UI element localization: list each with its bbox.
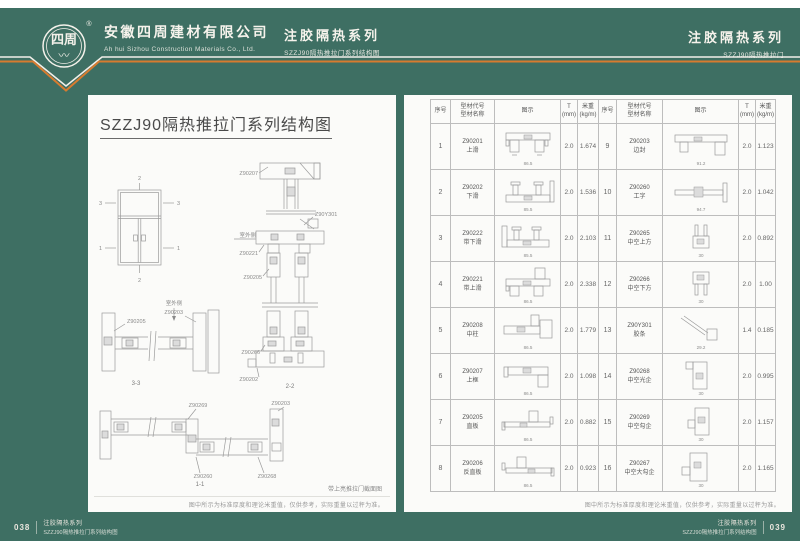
meter-weight-value: 1.042 xyxy=(756,170,776,216)
page-number-right: 039 xyxy=(770,523,786,532)
row-number: 1 xyxy=(431,124,451,170)
profile-dimension: 86.5 xyxy=(523,391,532,396)
row-number: 2 xyxy=(431,170,451,216)
elevation-marker: 2 xyxy=(138,176,141,182)
thickness-value: 2.0 xyxy=(739,400,756,446)
profile-code-name: Z90206反直板 xyxy=(451,446,495,492)
thickness-value: 2.0 xyxy=(561,308,578,354)
row-number: 6 xyxy=(431,354,451,400)
row-number: 4 xyxy=(431,262,451,308)
profile-name: 中空勾企 xyxy=(617,423,662,432)
profile-diagram-cell: 30 xyxy=(663,216,739,262)
row-number: 7 xyxy=(431,400,451,446)
profile-code: Z90260 xyxy=(617,184,662,193)
profile-dimension: 30 xyxy=(698,253,704,258)
profile-name: 中空上方 xyxy=(617,239,662,248)
profile-code-name: Z90205直板 xyxy=(451,400,495,446)
meter-weight-value: 0.923 xyxy=(578,446,599,492)
profile-diagram-cell: 85.5 xyxy=(495,216,561,262)
profile-dimension: 91.2 xyxy=(696,161,705,166)
profile-label: Z90269 xyxy=(189,403,208,409)
profile-diagram-cell: 85.5 xyxy=(495,170,561,216)
profile-label: Z90203 xyxy=(164,310,183,316)
profile-diagram-cell: 91.2 xyxy=(663,124,739,170)
profile-diagram: 85.5 xyxy=(498,220,558,258)
meter-weight-value: 0.892 xyxy=(756,216,776,262)
profile-label: Z90205 xyxy=(127,319,146,325)
profile-code: Z90221 xyxy=(451,276,494,285)
profile-code: Z90203 xyxy=(617,138,662,147)
meter-weight-value: 1.00 xyxy=(756,262,776,308)
profile-name: 上滑 xyxy=(451,147,494,156)
footer-left: 038 注胶隔热系列 SZZJ90隔热推拉门系列结构图 xyxy=(14,518,118,536)
section-caption: 2-2 xyxy=(286,384,295,390)
profile-spec-table: 序号 型材代号型材名称 图示 T(mm) 米重(kg/m) 序号 型材代号型材名… xyxy=(430,99,776,492)
spec-row: 6Z90207上框86.52.01.09814Z90268中空光企302.00.… xyxy=(431,354,776,400)
thickness-value: 2.0 xyxy=(561,354,578,400)
profile-dimension: 94.7 xyxy=(696,207,705,212)
row-number: 8 xyxy=(431,446,451,492)
meter-weight-value: 1.165 xyxy=(756,446,776,492)
registered-mark: ® xyxy=(86,20,92,28)
profile-code: Z90207 xyxy=(451,368,494,377)
col-header-weight: 米重(kg/m) xyxy=(756,100,776,124)
profile-label: Z90268 xyxy=(258,474,277,480)
profile-diagram: 30 xyxy=(671,358,731,396)
thickness-value: 2.0 xyxy=(561,262,578,308)
profile-diagram: 86.5 xyxy=(498,404,558,442)
profile-code: Z90202 xyxy=(451,184,494,193)
col-header-diagram: 图示 xyxy=(495,100,561,124)
profile-diagram-cell: 86.5 xyxy=(495,262,561,308)
spec-row: 4Z90221带上滑86.52.02.33812Z90266中空下方302.01… xyxy=(431,262,776,308)
right-page-note: 图中所示为标准厚度和理论米重值，仅供参考，实际重量以过秤为准。 xyxy=(585,500,780,509)
profile-name: 中空大勾企 xyxy=(617,469,662,478)
thickness-value: 2.0 xyxy=(561,170,578,216)
profile-code-name: Z90260工字 xyxy=(617,170,663,216)
series-subtitle-center: SZZJ90隔热推拉门系列结构图 xyxy=(240,47,424,57)
profile-name: 边封 xyxy=(617,147,662,156)
profile-dimension: 30 xyxy=(698,437,704,442)
left-page-note: 图中所示为标准厚度和理论米重值，仅供参考，实际重量以过秤为准。 xyxy=(189,500,384,509)
profile-dimension: 85.5 xyxy=(523,253,532,258)
profile-code: Z90266 xyxy=(617,276,662,285)
profile-code-name: Z90Y301胶条 xyxy=(617,308,663,354)
profile-code-name: Z90201上滑 xyxy=(451,124,495,170)
profile-dimension: 86.5 xyxy=(523,483,532,488)
profile-dimension: 30 xyxy=(698,299,704,304)
profile-diagram: 94.7 xyxy=(671,174,731,212)
right-page: 序号 型材代号型材名称 图示 T(mm) 米重(kg/m) 序号 型材代号型材名… xyxy=(404,95,792,512)
profile-name: 直板 xyxy=(451,423,494,432)
table-header: 序号 型材代号型材名称 图示 T(mm) 米重(kg/m) 序号 型材代号型材名… xyxy=(431,100,776,124)
series-title-center-block: 注胶隔热系列 SZZJ90隔热推拉门系列结构图 xyxy=(240,25,424,57)
profile-diagram: 86.5 xyxy=(498,312,558,350)
thickness-value: 2.0 xyxy=(739,216,756,262)
profile-label: Z90205 xyxy=(243,275,262,281)
meter-weight-value: 2.103 xyxy=(578,216,599,262)
series-title-right-block: 注胶隔热系列 SZZJ90隔热推拉门 xyxy=(688,27,784,59)
profile-name: 下滑 xyxy=(451,193,494,202)
profile-name: 中柱 xyxy=(451,331,494,340)
col-header-no: 序号 xyxy=(431,100,451,124)
meter-weight-value: 1.674 xyxy=(578,124,599,170)
profile-code-name: Z90207上框 xyxy=(451,354,495,400)
sizhou-logo-icon: 四周 〰 ® xyxy=(43,20,92,67)
profile-code: Z90Y301 xyxy=(617,322,662,331)
catalog-spread: 四周 〰 ® 安徽四周建材有限公司 Ah hui Sizhou Construc… xyxy=(0,0,800,546)
profile-label: Z90266 xyxy=(241,350,260,356)
series-subtitle-right: SZZJ90隔热推拉门 xyxy=(688,49,784,59)
profile-label: Z90203 xyxy=(271,401,290,407)
profile-code-name: Z90203边封 xyxy=(617,124,663,170)
profile-diagram-cell: 29.2 xyxy=(663,308,739,354)
thickness-value: 2.0 xyxy=(561,216,578,262)
outdoor-side-label: 室外侧 xyxy=(166,299,183,307)
meter-weight-value: 1.157 xyxy=(756,400,776,446)
col-header-no: 序号 xyxy=(599,100,617,124)
row-number: 13 xyxy=(599,308,617,354)
col-header-t: T(mm) xyxy=(739,100,756,124)
row-number: 12 xyxy=(599,262,617,308)
meter-weight-value: 1.779 xyxy=(578,308,599,354)
profile-diagram: 86.5 xyxy=(498,128,558,166)
divider xyxy=(94,496,390,497)
profile-name: 上框 xyxy=(451,377,494,386)
series-title-right: 注胶隔热系列 xyxy=(688,27,784,46)
page-number-left: 038 xyxy=(14,523,30,532)
footer-series-left: 注胶隔热系列 xyxy=(43,518,117,527)
meter-weight-value: 2.338 xyxy=(578,262,599,308)
profile-dimension: 86.5 xyxy=(523,161,532,166)
elevation-marker: 3 xyxy=(177,201,180,207)
footer-divider xyxy=(763,521,764,534)
profile-code: Z90268 xyxy=(617,368,662,377)
elevation-marker: 2 xyxy=(138,278,141,284)
row-number: 9 xyxy=(599,124,617,170)
series-title-center: 注胶隔热系列 xyxy=(240,25,424,44)
footer-series-right: 注胶隔热系列 xyxy=(682,518,756,527)
profile-name: 带上滑 xyxy=(451,285,494,294)
profile-code: Z90269 xyxy=(617,414,662,423)
thickness-value: 2.0 xyxy=(739,354,756,400)
thickness-value: 2.0 xyxy=(739,262,756,308)
section-3-3 xyxy=(102,308,219,373)
profile-dimension: 86.5 xyxy=(523,299,532,304)
profile-label: Z90221 xyxy=(239,251,258,257)
profile-label: Z90Y301 xyxy=(315,212,337,218)
profile-code-name: Z90265中空上方 xyxy=(617,216,663,262)
profile-code-name: Z90202下滑 xyxy=(451,170,495,216)
profile-code: Z90222 xyxy=(451,230,494,239)
drawing-caption: 带上亮推拉门截面图 xyxy=(328,484,382,493)
meter-weight-value: 1.123 xyxy=(756,124,776,170)
profile-dimension: 86.5 xyxy=(523,437,532,442)
spec-row: 7Z90205直板86.52.00.88215Z90269中空勾企302.01.… xyxy=(431,400,776,446)
profile-code: Z90205 xyxy=(451,414,494,423)
profile-diagram-cell: 86.5 xyxy=(495,446,561,492)
profile-diagram: 85.5 xyxy=(498,174,558,212)
profile-code-name: Z90221带上滑 xyxy=(451,262,495,308)
profile-diagram: 86.5 xyxy=(498,266,558,304)
profile-dimension: 86.5 xyxy=(523,345,532,350)
profile-dimension: 30 xyxy=(698,391,704,396)
profile-code: Z90267 xyxy=(617,460,662,469)
profile-diagram: 30 xyxy=(671,266,731,304)
profile-name: 带下滑 xyxy=(451,239,494,248)
col-header-code: 型材代号型材名称 xyxy=(451,100,495,124)
profile-diagram-cell: 30 xyxy=(663,354,739,400)
elevation-view xyxy=(105,183,174,273)
spec-row: 8Z90206反直板86.52.00.92316Z90267中空大勾企302.0… xyxy=(431,446,776,492)
profile-label: Z90260 xyxy=(194,474,213,480)
profile-code: Z90208 xyxy=(451,322,494,331)
thickness-value: 2.0 xyxy=(739,170,756,216)
meter-weight-value: 1.536 xyxy=(578,170,599,216)
profile-code-name: Z90269中空勾企 xyxy=(617,400,663,446)
company-logo: 四周 〰 ® xyxy=(32,12,98,84)
profile-code-name: Z90222带下滑 xyxy=(451,216,495,262)
profile-code: Z90265 xyxy=(617,230,662,239)
thickness-value: 1.4 xyxy=(739,308,756,354)
profile-code: Z90201 xyxy=(451,138,494,147)
outdoor-side-label: 室外侧 xyxy=(239,231,256,239)
meter-weight-value: 0.185 xyxy=(756,308,776,354)
profile-diagram: 91.2 xyxy=(671,128,731,166)
col-header-weight: 米重(kg/m) xyxy=(578,100,599,124)
elevation-marker: 3 xyxy=(99,201,102,207)
footer-divider xyxy=(36,521,37,534)
meter-weight-value: 0.882 xyxy=(578,400,599,446)
col-header-t: T(mm) xyxy=(561,100,578,124)
profile-code-name: Z90268中空光企 xyxy=(617,354,663,400)
thickness-value: 2.0 xyxy=(561,446,578,492)
profile-dimension: 85.5 xyxy=(523,207,532,212)
profile-name: 胶条 xyxy=(617,331,662,340)
thickness-value: 2.0 xyxy=(739,446,756,492)
profile-diagram: 30 xyxy=(671,450,731,488)
profile-name: 工字 xyxy=(617,193,662,202)
elevation-marker: 1 xyxy=(177,246,180,252)
row-number: 3 xyxy=(431,216,451,262)
section-1-1 xyxy=(100,407,284,473)
thickness-value: 2.0 xyxy=(561,400,578,446)
profile-label: Z90202 xyxy=(239,377,258,383)
profile-code: Z90206 xyxy=(451,460,494,469)
page-title: SZZJ90隔热推拉门系列结构图 xyxy=(100,111,332,139)
profile-name: 反直板 xyxy=(451,469,494,478)
elevation-marker: 1 xyxy=(99,246,102,252)
row-number: 14 xyxy=(599,354,617,400)
profile-diagram-cell: 94.7 xyxy=(663,170,739,216)
spec-row: 3Z90222带下滑85.52.02.10311Z90265中空上方302.00… xyxy=(431,216,776,262)
col-header-diagram: 图示 xyxy=(663,100,739,124)
spec-row: 2Z90202下滑85.52.01.53610Z90260工字94.72.01.… xyxy=(431,170,776,216)
left-page: SZZJ90隔热推拉门系列结构图 2 3 3 1 1 2 xyxy=(88,95,396,512)
structure-drawing: 2 3 3 1 1 2 xyxy=(88,147,396,487)
profile-name: 中空光企 xyxy=(617,377,662,386)
profile-diagram-cell: 86.5 xyxy=(495,308,561,354)
section-2-2 xyxy=(234,163,324,377)
profile-diagram-cell: 86.5 xyxy=(495,124,561,170)
profile-diagram: 86.5 xyxy=(498,358,558,396)
meter-weight-value: 1.098 xyxy=(578,354,599,400)
spec-row: 5Z90208中柱86.52.01.77913Z90Y301胶条29.21.40… xyxy=(431,308,776,354)
profile-diagram-cell: 86.5 xyxy=(495,400,561,446)
profile-dimension: 29.2 xyxy=(696,345,705,350)
row-number: 10 xyxy=(599,170,617,216)
logo-characters: 四周 xyxy=(51,32,77,47)
profile-label: Z90207 xyxy=(239,171,258,177)
profile-diagram: 30 xyxy=(671,404,731,442)
profile-diagram: 29.2 xyxy=(671,312,731,350)
profile-diagram-cell: 30 xyxy=(663,446,739,492)
footer-right: 039 注胶隔热系列 SZZJ90隔热推拉门系列结构图 xyxy=(682,518,786,536)
profile-code-name: Z90208中柱 xyxy=(451,308,495,354)
profile-diagram-cell: 86.5 xyxy=(495,354,561,400)
profile-code-name: Z90266中空下方 xyxy=(617,262,663,308)
svg-text:〰: 〰 xyxy=(59,50,70,62)
row-number: 11 xyxy=(599,216,617,262)
row-number: 5 xyxy=(431,308,451,354)
spec-row: 1Z90201上滑86.52.01.6749Z90203边封91.22.01.1… xyxy=(431,124,776,170)
profile-diagram-cell: 30 xyxy=(663,400,739,446)
profile-name: 中空下方 xyxy=(617,285,662,294)
profile-diagram: 30 xyxy=(671,220,731,258)
meter-weight-value: 0.995 xyxy=(756,354,776,400)
profile-diagram-cell: 30 xyxy=(663,262,739,308)
footer-subtitle-left: SZZJ90隔热推拉门系列结构图 xyxy=(43,528,117,536)
section-caption: 1-1 xyxy=(196,482,205,487)
profile-code-name: Z90267中空大勾企 xyxy=(617,446,663,492)
row-number: 15 xyxy=(599,400,617,446)
footer-subtitle-right: SZZJ90隔热推拉门系列结构图 xyxy=(682,528,756,536)
section-caption: 3-3 xyxy=(132,381,141,387)
profile-dimension: 30 xyxy=(698,483,704,488)
col-header-code: 型材代号型材名称 xyxy=(617,100,663,124)
profile-diagram: 86.5 xyxy=(498,450,558,488)
thickness-value: 2.0 xyxy=(739,124,756,170)
row-number: 16 xyxy=(599,446,617,492)
thickness-value: 2.0 xyxy=(561,124,578,170)
